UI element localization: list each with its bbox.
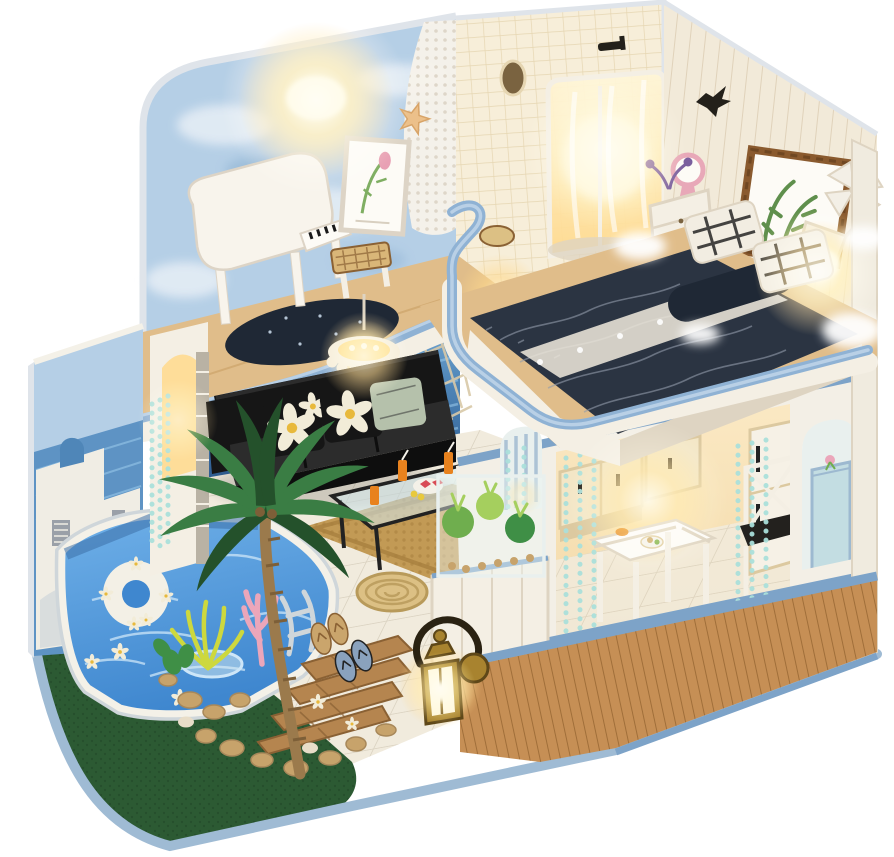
wicker-basket — [480, 226, 514, 246]
pale-blue-cabinet — [812, 462, 850, 576]
round-mirror — [501, 61, 525, 95]
dollhouse-illustration — [0, 0, 894, 857]
product-photo-miniature-dollhouse — [0, 0, 894, 857]
rope-pouf[interactable] — [357, 573, 427, 611]
